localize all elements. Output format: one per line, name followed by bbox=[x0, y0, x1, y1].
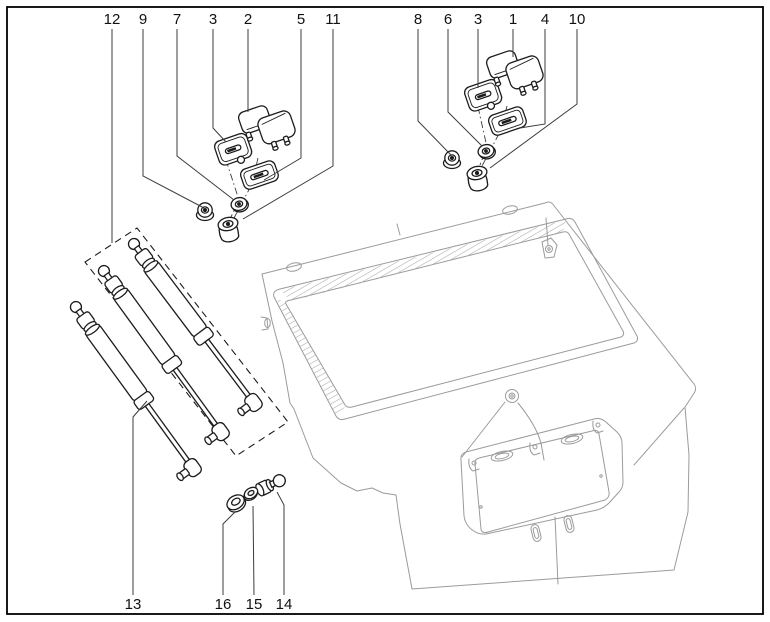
callout-label-5: 5 bbox=[297, 11, 305, 28]
callout-label-10: 10 bbox=[569, 11, 586, 28]
callout-label-9: 9 bbox=[139, 11, 147, 28]
parts-diagram-page: 129732511863141013161514 bbox=[0, 0, 770, 622]
callout-label-15: 15 bbox=[246, 596, 263, 613]
callout-label-12: 12 bbox=[104, 11, 121, 28]
callout-label-13: 13 bbox=[125, 596, 142, 613]
callout-label-3: 3 bbox=[474, 11, 482, 28]
callout-label-6: 6 bbox=[444, 11, 452, 28]
callout-label-11: 11 bbox=[325, 11, 341, 28]
tailgate-exploded-diagram: 129732511863141013161514 bbox=[0, 0, 770, 622]
callout-label-8: 8 bbox=[414, 11, 422, 28]
callout-label-3: 3 bbox=[209, 11, 217, 28]
callout-label-14: 14 bbox=[276, 596, 293, 613]
callout-label-7: 7 bbox=[173, 11, 181, 28]
callout-label-1: 1 bbox=[509, 11, 517, 28]
callout-label-2: 2 bbox=[244, 11, 252, 28]
callout-label-16: 16 bbox=[215, 596, 232, 613]
diagram-border bbox=[7, 7, 763, 614]
callout-label-4: 4 bbox=[541, 11, 549, 28]
flanged-nut-right bbox=[444, 151, 461, 169]
